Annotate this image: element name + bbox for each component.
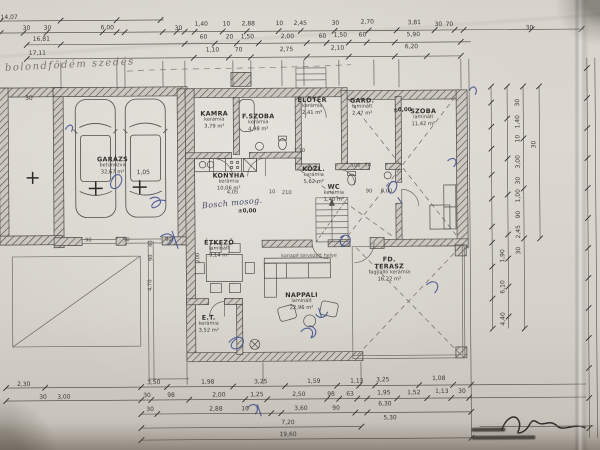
dim-label: 30	[146, 407, 154, 413]
dim-label: 10	[223, 21, 231, 27]
dim-label: 2,00	[212, 393, 225, 399]
dim-label: 2,45	[516, 225, 522, 238]
dim-label: 4,40	[501, 312, 507, 325]
dim-label: 90	[85, 238, 92, 243]
dim-label: 30	[175, 26, 183, 32]
room-label-nappali: NAPPALI laminált 22,96 m²	[279, 292, 323, 311]
dim-label: 6,30	[378, 401, 391, 407]
fence-line	[148, 241, 149, 381]
dim-label: 70	[446, 22, 454, 28]
dim-label: 1,05	[137, 170, 150, 176]
dim-label: 30	[531, 141, 537, 149]
dim-label: 70	[235, 47, 243, 53]
dim-label: 30	[435, 22, 443, 28]
dim-label: 16,81	[33, 37, 50, 43]
room-label-etkezo: ÉTKEZŐ laminált 9,14 m²	[197, 239, 241, 258]
dim-label: 90	[149, 254, 154, 261]
dim-label: 10	[276, 21, 284, 27]
room-label-konyha: KONYHA kerámia 10,06 m²	[207, 172, 251, 191]
dim-label: 19,60	[279, 432, 296, 438]
dim-label: 10	[269, 190, 276, 195]
dim-label: 63	[346, 392, 354, 398]
room-area: 32,67 m²	[91, 169, 135, 175]
dim-label: 1,13	[435, 389, 448, 395]
dim-label: 5,90	[407, 32, 420, 38]
dim-label: 30	[39, 395, 47, 401]
dim-label: 10	[515, 135, 521, 143]
dim-label: 1,95	[377, 390, 390, 396]
kitchen-counter-icon	[195, 158, 257, 171]
dim-label: 30	[516, 247, 522, 255]
dim-label: 2,00	[281, 34, 294, 40]
dim-label: 30	[526, 25, 534, 31]
dim-label: 60	[359, 33, 367, 39]
room-label-gard: GARD. laminált 2,47 m²	[340, 97, 384, 116]
dim-label: 40	[149, 240, 154, 247]
dim-label: 90	[123, 238, 130, 243]
dim-label: 1,52	[407, 390, 420, 396]
dim-label: 14,07	[1, 15, 18, 21]
room-label-kamra: KAMRA kerámia 3,79 m²	[192, 110, 236, 129]
dim-label: 4,05	[227, 190, 239, 195]
blue-ink-scribbles	[65, 87, 479, 418]
dim-label: 30	[25, 96, 33, 102]
dim-label: 2,30	[17, 382, 30, 388]
dim-label: 1,40	[195, 22, 208, 28]
plan-sheet: GARÁZS betonozva 32,67 m² KAMRA kerámia …	[0, 0, 600, 450]
dim-label: 100	[351, 164, 361, 169]
dim-label: 98	[167, 393, 175, 399]
dim-label: 2,45	[294, 21, 307, 27]
dim-label: 1,40	[515, 115, 521, 128]
dim-label: 30	[332, 21, 340, 27]
dim-label: 4,70	[148, 279, 153, 291]
dim-label: 30	[516, 177, 522, 185]
dim-label: 1,50	[334, 33, 347, 39]
dim-label: 3,00	[57, 395, 70, 401]
title-block-text	[471, 435, 535, 439]
level-marker-kitchen: ±0,00	[238, 208, 257, 214]
dim-label: 30	[44, 26, 52, 32]
dim-label: 70	[365, 164, 372, 169]
dim-label: 210	[282, 191, 292, 196]
dim-label: 1,50	[241, 34, 254, 40]
dim-label: 6,10	[500, 280, 506, 293]
dim-label: 1,25	[250, 392, 263, 398]
dim-label: 30	[458, 389, 466, 395]
dim-label: 1,00	[516, 189, 522, 202]
dim-label: 200	[196, 253, 201, 263]
dim-label: 3,25	[254, 379, 267, 385]
dim-label: 3,60	[294, 406, 307, 412]
dim-label: 1,13	[350, 379, 363, 385]
room-label-et: E.T. kerámia 3,52 m²	[191, 315, 227, 334]
level-marker-entry: ±0,00	[393, 107, 412, 113]
room-label-fszoba: F.SZOBA kerámia 4,98 m²	[236, 113, 280, 132]
dim-label: 1,10	[293, 149, 305, 154]
dim-label: 3,50	[147, 380, 160, 386]
dim-label: 1,90	[500, 249, 506, 262]
room-label-garazs: GARÁZS betonozva 32,67 m²	[91, 156, 135, 175]
dim-label: 30	[23, 26, 31, 32]
dim-label: 30	[515, 99, 521, 107]
dim-label: 2,50	[292, 392, 305, 398]
dim-label: 3,00	[516, 155, 522, 168]
dim-label: 3,81	[408, 20, 421, 26]
dim-label: 2,70	[361, 19, 374, 25]
dim-label: 1,59	[307, 379, 320, 385]
dim-label: 6,00	[381, 189, 393, 194]
dim-label: 1,10	[206, 48, 219, 54]
dim-label: 1,98	[201, 380, 214, 386]
dim-label: 2,10	[331, 46, 344, 52]
dim-label: 20	[226, 34, 234, 40]
dim-label: 6,00	[101, 25, 114, 31]
dimension-chains	[0, 14, 598, 444]
dim-label: 17,11	[29, 51, 46, 57]
dim-label: 7,20	[281, 420, 294, 426]
dim-label: 2,88	[242, 21, 255, 27]
dim-label: 90	[366, 189, 373, 194]
signature	[501, 416, 585, 433]
dim-label: 2,75	[280, 47, 293, 53]
title-block-text	[471, 428, 505, 432]
dim-label: 3,25	[376, 377, 389, 383]
dim-label: 1,08	[432, 376, 445, 382]
dim-label: 10	[241, 406, 249, 412]
dim-label: 60	[319, 34, 327, 40]
room-label-terasz: FD. TERASZ fagyálló kerámia 16,22 m²	[367, 256, 411, 282]
dim-label: 90	[332, 406, 340, 412]
dim-label: 60	[200, 35, 208, 41]
dim-label: 30	[143, 393, 151, 399]
dim-label: 5,30	[383, 415, 396, 421]
dim-label: 90	[165, 238, 172, 243]
dim-label: 2,88	[209, 407, 222, 413]
room-label-wc: WC kerámia 1,40 m²	[312, 184, 356, 203]
floorplan-photo: GARÁZS betonozva 32,67 m² KAMRA kerámia …	[0, 0, 600, 450]
sofa-note: kanapé tervezett helye	[281, 254, 337, 259]
dim-label: 98	[327, 392, 335, 398]
dim-label: 90	[516, 211, 522, 219]
room-label-eloter: ELŐTÉR kerámia 2,41 m²	[290, 97, 334, 116]
dim-label: 6,20	[405, 44, 418, 50]
